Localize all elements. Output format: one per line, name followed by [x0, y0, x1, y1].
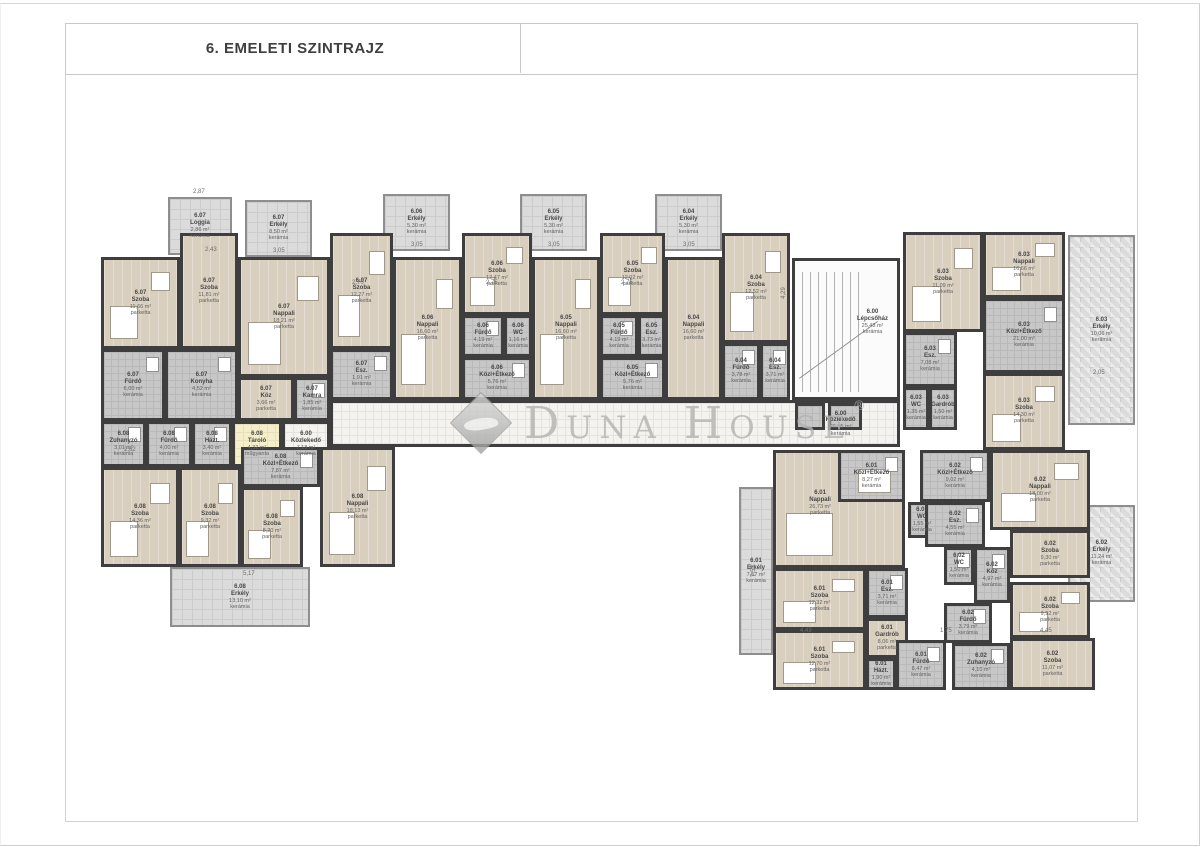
room-label: 6.06WC1,16 m²kerámia	[507, 318, 529, 354]
furniture	[297, 276, 320, 301]
sheet-title: 6. EMELETI SZINTRAJZ	[85, 23, 505, 73]
room-6.01-esz: 6.01Esz.3,71 m²kerámia	[866, 568, 908, 618]
room-label: 6.03Erkély10,06 m²kerámia	[1070, 237, 1133, 423]
fixture	[174, 427, 187, 442]
room-6.07-k-z: 6.07Köz3,66 m²parketta	[238, 377, 294, 421]
furniture	[783, 601, 816, 623]
furniture	[436, 279, 453, 308]
room-6.07-nappali: 6.07Nappali18,21 m²parketta	[238, 257, 330, 377]
furniture	[992, 267, 1021, 291]
fixture	[300, 453, 313, 468]
fixture	[992, 554, 1005, 569]
dimension-label: 2,75	[621, 280, 633, 286]
furniture	[1035, 243, 1055, 257]
room-6.08-f-rd: 6.08Fürdő4,00 m²kerámia	[146, 421, 192, 467]
room-6.02-k-z: 6.02Köz4,97 m²kerámia	[974, 547, 1010, 603]
room-6.08-zuhanyz: 6.08Zuhanyzó3,01 m²kerámia	[101, 421, 146, 467]
room-6.08-erk-ly: 6.08Erkély13,10 m²kerámia	[170, 567, 310, 627]
room-6.05-esz: 6.05Esz.3,73 m²kerámia	[638, 315, 665, 357]
dimension-label: 7,57	[751, 565, 757, 577]
dimension-label: 4,43	[800, 628, 812, 634]
dimension-label: 2,43	[205, 247, 217, 253]
fixture	[742, 350, 755, 365]
dimension-label: 3,05	[411, 242, 423, 248]
furniture	[401, 334, 426, 385]
furniture	[954, 248, 974, 269]
dimension-label: 3,05	[683, 242, 695, 248]
dimension-label: 5,17	[243, 571, 255, 577]
room-label: 6.08Erkély13,10 m²kerámia	[172, 569, 308, 625]
room-6.07-kamra: 6.07Kamra1,85 m²kerámia	[294, 377, 330, 421]
room-6.01-szoba: 6.01Szoba12,32 m²parketta	[773, 568, 866, 630]
room-6.07-konyha: 6.07Konyha4,52 m²kerámia	[165, 349, 238, 421]
room-6.00-l-pcs-h-z: 6.00Lépcsőház25,43 m²kerámia	[792, 258, 900, 400]
room-6.08-h-zt: 6.08Házt.3,40 m²kerámia	[192, 421, 232, 467]
room-6.04-f-rd: 6.04Fürdő3,78 m²kerámia	[722, 343, 760, 400]
room-6.01-h-zt: 6.01Házt.1,90 m²kerámia	[866, 658, 896, 690]
furniture	[1035, 386, 1055, 402]
fixture	[773, 350, 786, 365]
room-6.08-k-zl-tkez: 6.08Közl+Étkező7,87 m²kerámia	[241, 447, 320, 487]
room-6.06-k-zl-tkez: 6.06Közl+Étkező5,76 m²kerámia	[462, 357, 532, 400]
room-6.02-k-zl-tkez: 6.02Közl+Étkező9,02 m²kerámia	[920, 450, 990, 502]
furniture	[1061, 592, 1081, 604]
room-6.08-szoba: 6.08Szoba9,32 m²parketta	[179, 467, 241, 567]
furniture	[1054, 463, 1079, 480]
room-label: 6.04Nappali16,60 m²parketta	[668, 260, 719, 397]
fixture	[146, 357, 159, 372]
dimension-label: 3,05	[548, 242, 560, 248]
room-6.05-nappali: 6.05Nappali16,60 m²parketta	[532, 257, 600, 400]
room-6.08-nappali: 6.08Nappali18,13 m²parketta	[320, 447, 395, 567]
fixture	[645, 363, 658, 378]
fixture	[312, 383, 325, 398]
room-6.06-f-rd: 6.06Fürdő4,19 m²kerámia	[462, 315, 504, 357]
room-6.03-k-zl-tkez: 6.03Közl+Étkező21,00 m²kerámia	[983, 298, 1065, 373]
furniture	[329, 512, 356, 555]
fixture	[620, 321, 633, 336]
fixture	[486, 321, 499, 336]
room-6.03-esz: 6.03Esz.7,08 m²kerámia	[903, 332, 957, 387]
fixture	[214, 427, 227, 442]
room-label: 6.01Házt.1,90 m²kerámia	[869, 661, 893, 687]
room-6.03-erk-ly: 6.03Erkély10,06 m²kerámia	[1068, 235, 1135, 425]
furniture	[1001, 493, 1037, 522]
room-6.04-szoba: 6.04Szoba12,52 m²parketta	[722, 233, 790, 343]
furniture	[280, 500, 295, 517]
furniture	[248, 530, 270, 559]
dimension-label: 2,05	[1093, 370, 1105, 376]
room-6.05-f-rd: 6.05Fürdő4,19 m²kerámia	[600, 315, 638, 357]
furniture	[858, 469, 890, 493]
dimension-label: 2,62	[124, 447, 136, 453]
fixture	[218, 357, 231, 372]
fixture	[938, 339, 951, 354]
room-6.03-szoba: 6.03Szoba11,09 m²parketta	[903, 232, 983, 332]
furniture	[730, 292, 754, 331]
fixture	[970, 457, 983, 472]
room-label: 6.03WC1,35 m²kerámia	[906, 390, 926, 427]
room-6.02-szoba: 6.02Szoba11,07 m²parketta	[1010, 638, 1095, 690]
room-6.06-szoba: 6.06Szoba12,47 m²parketta	[462, 233, 532, 315]
fixture	[991, 649, 1004, 664]
fixture	[966, 508, 979, 523]
furniture	[832, 579, 855, 592]
dimension-label: 2,70	[352, 280, 364, 286]
room-6.05-szoba: 6.05Szoba12,02 m²parketta	[600, 233, 665, 315]
dimension-label: 4,45	[1040, 628, 1052, 634]
room-label: 6.05Esz.3,73 m²kerámia	[641, 318, 662, 354]
room-6.07-szoba: 6.07Szoba11,66 m²parketta	[101, 257, 180, 349]
fixture	[374, 356, 387, 371]
shaft	[795, 403, 825, 430]
room-label: 6.02Szoba11,07 m²parketta	[1013, 641, 1092, 687]
shaft	[828, 403, 862, 430]
room-6.07-szoba: 6.07Szoba12,27 m²parketta	[330, 233, 393, 349]
room-6.04-esz: 6.04Esz.3,71 m²kerámia	[760, 343, 790, 400]
room-label: 6.00Lépcsőház25,43 m²kerámia	[857, 309, 888, 335]
dimension-label: 3,05	[273, 248, 285, 254]
room-6.01-szoba: 6.01Szoba12,70 m²parketta	[773, 630, 866, 690]
furniture	[151, 272, 171, 291]
dimension-label: 1,75	[940, 628, 952, 634]
furniture	[110, 521, 138, 557]
furniture	[186, 521, 208, 557]
room-6.03-wc: 6.03WC1,35 m²kerámia	[903, 387, 929, 430]
furniture	[783, 662, 816, 683]
room-6.08-szoba: 6.08Szoba8,20 m²parketta	[241, 487, 303, 567]
room-6.02-f-rd: 6.02Fürdő3,79 m²kerámia	[944, 603, 992, 643]
room-6.07-esz: 6.07Esz.1,91 m²kerámia	[330, 349, 393, 400]
room-6.03-gardr-b: 6.03Gardrób1,50 m²kerámia	[929, 387, 957, 430]
furniture	[912, 286, 941, 322]
furniture	[786, 513, 833, 555]
fixture	[1044, 307, 1057, 322]
room-6.02-nappali: 6.02Nappali18,00 m²parketta	[990, 450, 1090, 530]
room-6.06-wc: 6.06WC1,16 m²kerámia	[504, 315, 532, 357]
furniture	[765, 251, 782, 274]
dimension-label: 4,29	[781, 287, 787, 299]
furniture	[641, 247, 657, 264]
room-6.03-szoba: 6.03Szoba14,30 m²parketta	[983, 373, 1065, 450]
room-6.06-nappali: 6.06Nappali16,60 m²parketta	[393, 257, 462, 400]
fixture	[885, 457, 898, 472]
room-label: 6.02Szoba9,30 m²parketta	[1013, 533, 1087, 575]
room-6.02-szoba: 6.02Szoba9,30 m²parketta	[1010, 530, 1090, 578]
furniture	[575, 279, 592, 308]
fixture	[957, 553, 970, 568]
floorplan-sheet: { "page": { "title": "6. EMELETI SZINTRA…	[0, 0, 1200, 847]
furniture	[369, 251, 385, 275]
furniture	[506, 247, 523, 264]
furniture	[248, 322, 281, 365]
room-6.08-szoba: 6.08Szoba14,36 m²parketta	[101, 467, 179, 567]
furniture	[110, 306, 138, 339]
room-6.03-nappali: 6.03Nappali16,66 m²parketta	[983, 232, 1065, 298]
room-6.07-f-rd: 6.07Fürdő6,00 m²kerámia	[101, 349, 165, 421]
room-6.05-k-zl-tkez: 6.05Közl+Étkező5,76 m²kerámia	[600, 357, 665, 400]
dimension-label: 2,87	[193, 189, 205, 195]
furniture	[338, 295, 361, 337]
fixture	[927, 647, 940, 662]
room-6.02-zuhanyz: 6.02Zuhanyzó4,10 m²kerámia	[952, 643, 1010, 690]
fixture	[973, 609, 986, 624]
dimension-label: 2,75	[486, 280, 498, 286]
room-6.01-f-rd: 6.01Fürdő8,47 m²kerámia	[896, 640, 946, 690]
floorplan-canvas: 6. EMELETI SZINTRAJZ 6.07Loggia2,86 m²ke…	[0, 0, 1200, 847]
room-label: 6.03Gardrób1,50 m²kerámia	[932, 390, 954, 427]
fixture	[128, 427, 141, 442]
room-6.02-esz: 6.02Esz.4,55 m²kerámia	[925, 502, 985, 547]
furniture	[218, 483, 233, 504]
furniture	[992, 414, 1021, 442]
furniture	[832, 641, 855, 654]
room-label: 6.07Köz3,66 m²parketta	[241, 380, 291, 418]
room-6.02-wc: 6.02WC1,50 m²kerámia	[944, 547, 974, 585]
furniture	[367, 466, 386, 491]
fixture	[512, 363, 525, 378]
room-6.04-nappali: 6.04Nappali16,60 m²parketta	[665, 257, 722, 400]
furniture	[150, 483, 169, 504]
title-block-divider	[520, 23, 521, 73]
fixture	[890, 575, 903, 590]
furniture	[540, 334, 564, 385]
